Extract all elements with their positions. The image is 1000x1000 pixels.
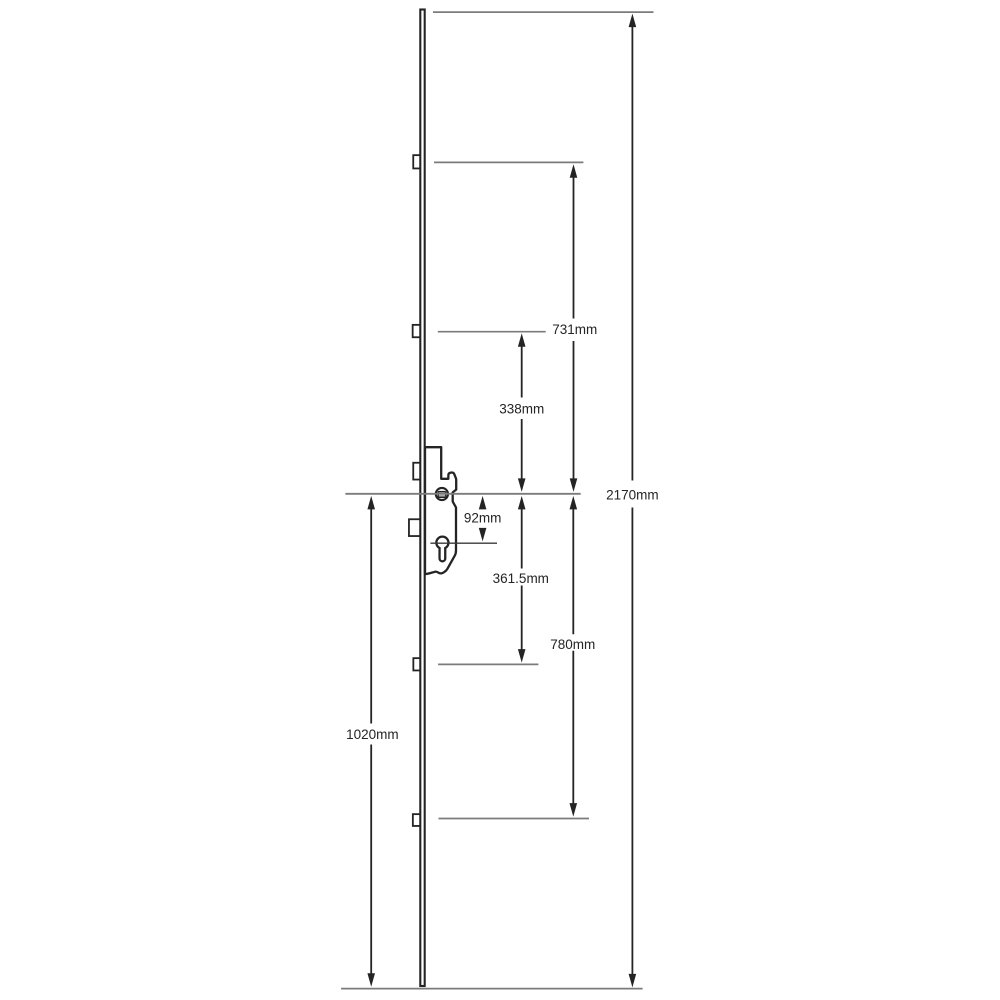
- svg-text:1020mm: 1020mm: [346, 727, 399, 742]
- svg-text:92mm: 92mm: [464, 511, 502, 526]
- svg-text:338mm: 338mm: [499, 402, 544, 417]
- svg-text:2170mm: 2170mm: [606, 488, 659, 503]
- svg-text:731mm: 731mm: [552, 322, 597, 337]
- svg-text:361.5mm: 361.5mm: [493, 571, 549, 586]
- svg-text:780mm: 780mm: [550, 637, 595, 652]
